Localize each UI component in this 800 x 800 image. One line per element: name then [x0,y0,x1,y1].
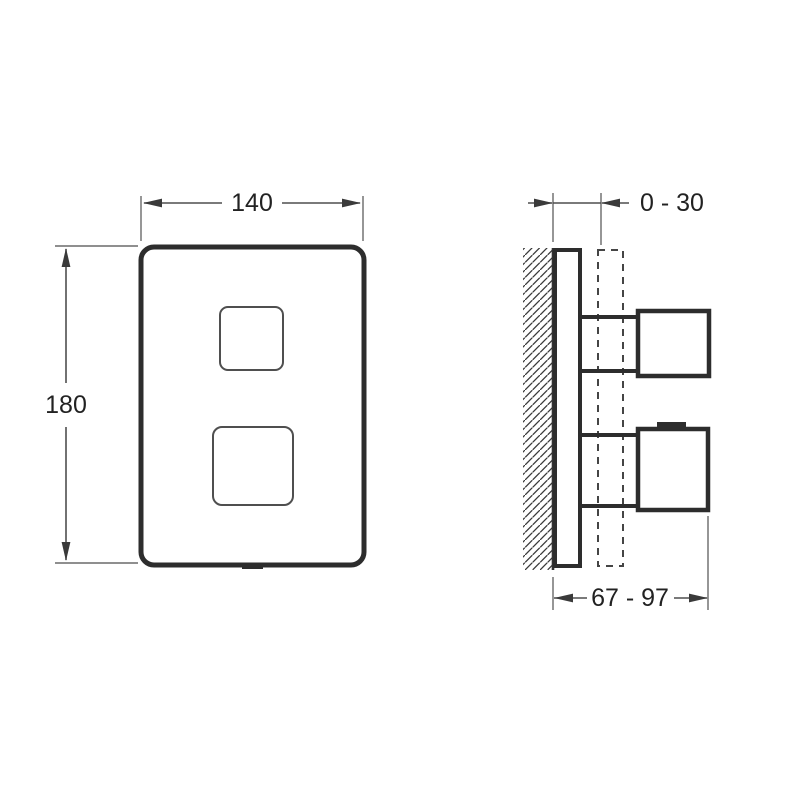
upper-button-front [220,307,283,370]
faceplate-side-profile [555,250,580,566]
arrow-right-icon [534,199,553,208]
front-view [141,247,364,568]
arrow-down-icon [62,542,71,561]
dim-height-label: 180 [45,391,87,419]
lower-button-front [213,427,293,505]
arrow-left-icon [554,594,573,603]
upper-handle-side [638,311,709,376]
lower-handle-index-tab [657,422,686,429]
side-view [523,248,709,570]
dim-width-label: 140 [231,189,273,217]
faceplate-front [141,247,364,565]
lower-handle-side [638,429,708,510]
dimension-height: 180 [45,246,138,563]
technical-drawing-canvas: 140 180 [0,0,800,800]
arrow-up-icon [62,248,71,267]
arrow-left-icon [143,199,162,208]
valve-trim-dimension-drawing: 140 180 [0,0,800,800]
faceplate-alternate-position-dashed [598,250,623,566]
dimension-width: 140 [141,189,363,241]
arrow-right-icon [689,594,708,603]
wall-hatching [523,248,553,570]
dimension-wall-offset: 0 - 30 [528,189,704,245]
arrow-left-icon [601,199,620,208]
dim-offset-label: 0 - 30 [640,189,704,217]
dim-depth-label: 67 - 97 [591,584,669,612]
arrow-right-icon [342,199,361,208]
